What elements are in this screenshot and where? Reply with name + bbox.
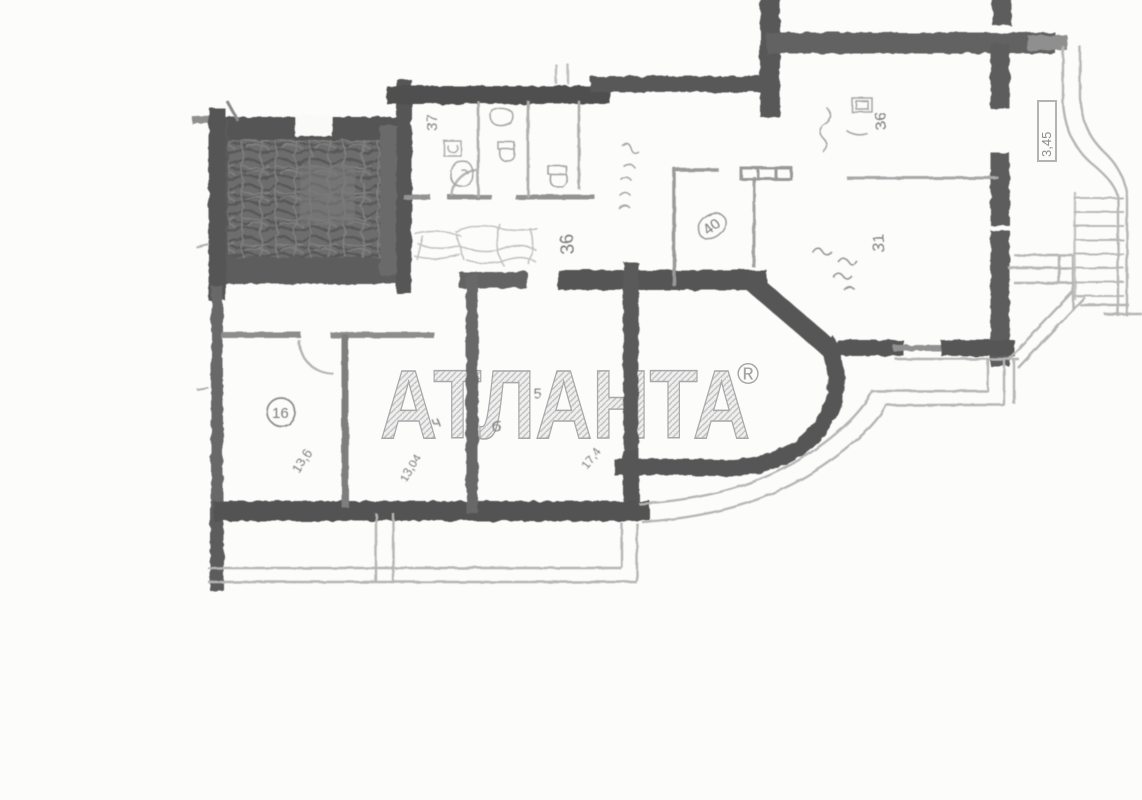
svg-text:б: б <box>492 419 501 436</box>
svg-text:36: 36 <box>556 233 579 256</box>
svg-text:АТЛАНТА: АТЛАНТА <box>380 350 750 459</box>
svg-text:36: 36 <box>873 112 890 130</box>
svg-text:5: 5 <box>533 385 541 402</box>
svg-text:3,45: 3,45 <box>1039 132 1054 157</box>
svg-text:®: ® <box>737 358 759 391</box>
svg-text:16: 16 <box>272 405 289 422</box>
svg-text:31: 31 <box>871 234 888 252</box>
svg-text:37: 37 <box>424 114 441 131</box>
